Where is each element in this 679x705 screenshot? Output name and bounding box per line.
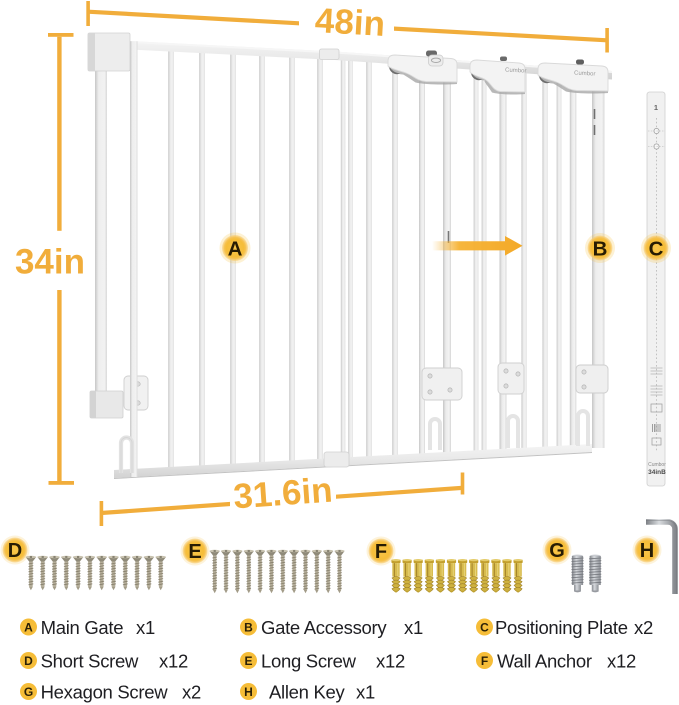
svg-text:F: F <box>481 654 488 668</box>
svg-text:Main Gate: Main Gate <box>41 617 124 638</box>
svg-text:Allen Key: Allen Key <box>269 681 346 702</box>
svg-text:Short Screw: Short Screw <box>41 650 139 671</box>
svg-text:1: 1 <box>654 103 658 112</box>
svg-text:D: D <box>24 654 33 668</box>
svg-text:B: B <box>244 620 253 634</box>
svg-text:H: H <box>640 540 654 562</box>
svg-text:x1: x1 <box>404 617 423 638</box>
svg-text:A: A <box>24 620 33 634</box>
svg-text:x1: x1 <box>136 617 155 638</box>
svg-text:Long Screw: Long Screw <box>261 650 357 671</box>
svg-text:G: G <box>549 540 565 562</box>
svg-text:x2: x2 <box>182 681 201 702</box>
svg-text:E: E <box>188 541 201 563</box>
svg-text:x12: x12 <box>376 650 405 671</box>
svg-text:x2: x2 <box>634 617 653 638</box>
svg-text:x1: x1 <box>356 681 375 702</box>
svg-text:Hexagon Screw: Hexagon Screw <box>41 681 169 702</box>
svg-text:E: E <box>244 654 252 668</box>
svg-text:C: C <box>480 620 489 634</box>
svg-text:34inB: 34inB <box>648 469 666 476</box>
svg-text:Positioning Plate: Positioning Plate <box>495 617 628 638</box>
svg-text:B: B <box>593 237 608 260</box>
svg-text:48in: 48in <box>314 1 386 44</box>
svg-text:31.6in: 31.6in <box>232 471 334 517</box>
svg-text:Cumbor: Cumbor <box>574 71 596 78</box>
svg-text:Gate Accessory: Gate Accessory <box>261 617 387 638</box>
svg-text:A: A <box>228 237 243 260</box>
svg-text:Wall Anchor: Wall Anchor <box>497 650 592 671</box>
svg-text:F: F <box>375 541 387 563</box>
svg-text:C: C <box>649 237 664 260</box>
svg-text:x12: x12 <box>607 650 636 671</box>
svg-text:Cumbor: Cumbor <box>648 462 666 468</box>
svg-text:34in: 34in <box>15 243 85 282</box>
svg-text:Cumbor: Cumbor <box>505 68 527 75</box>
svg-text:x12: x12 <box>159 650 188 671</box>
svg-text:D: D <box>8 540 22 562</box>
svg-text:H: H <box>244 685 253 699</box>
svg-text:G: G <box>24 685 33 699</box>
